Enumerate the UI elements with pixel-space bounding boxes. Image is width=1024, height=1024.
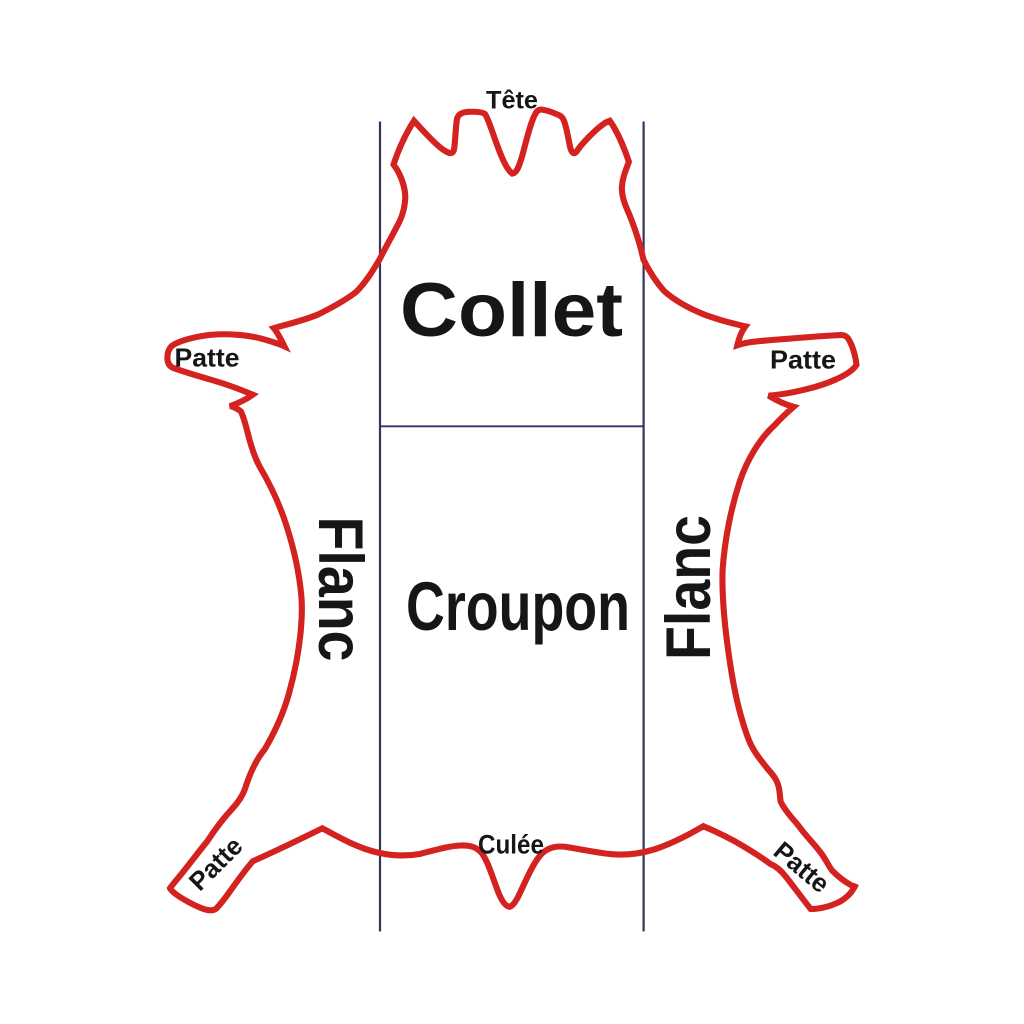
svg-text:Culée: Culée bbox=[478, 829, 544, 859]
svg-text:Croupon: Croupon bbox=[406, 568, 630, 645]
svg-text:Tête: Tête bbox=[486, 87, 538, 115]
svg-text:Flanc: Flanc bbox=[654, 515, 724, 660]
svg-text:Patte: Patte bbox=[770, 345, 836, 375]
svg-text:Flanc: Flanc bbox=[305, 517, 375, 662]
svg-text:Patte: Patte bbox=[175, 343, 240, 373]
svg-text:Collet: Collet bbox=[400, 268, 623, 353]
